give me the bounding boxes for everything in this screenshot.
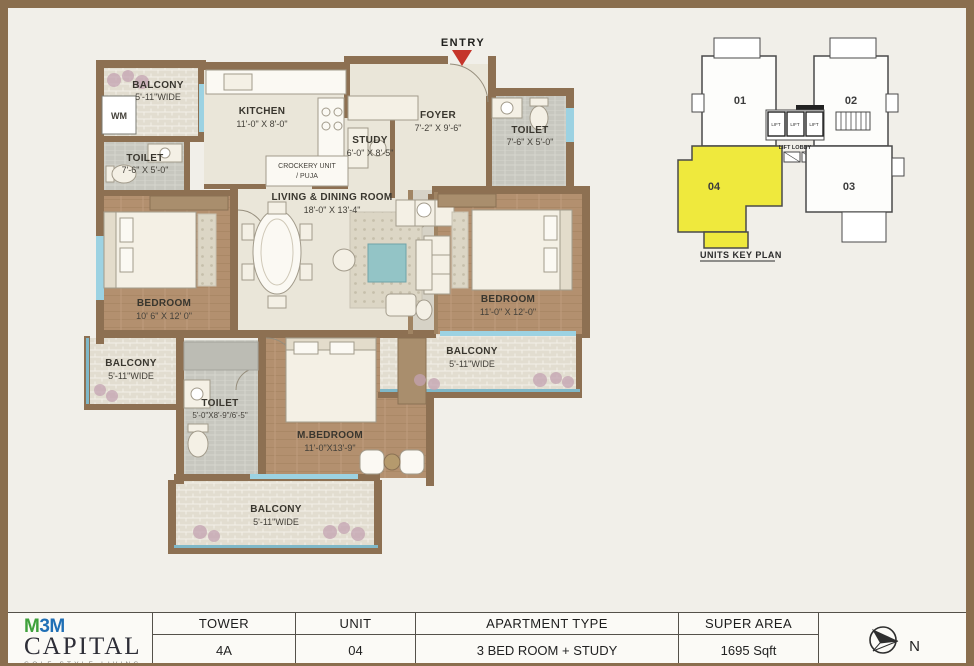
- pillow: [120, 218, 133, 242]
- bed: [104, 212, 196, 288]
- tower-column: TOWER 4A: [152, 613, 295, 666]
- wc: [416, 300, 432, 320]
- compass: N: [818, 613, 966, 666]
- crockery-unit-box: [266, 156, 348, 186]
- wardrobe: [398, 338, 426, 404]
- floorplan-page: ENTRY BALCONY 5'-11"WIDE WM KITCHEN 11'-…: [0, 0, 974, 666]
- label-toilet-tr: TOILET: [511, 125, 548, 136]
- lift-lobby-label: LIFT LOBBY: [779, 145, 812, 151]
- dining-chair: [268, 202, 286, 214]
- svg-text:5'-0"X8'-9"/6'-5": 5'-0"X8'-9"/6'-5": [192, 411, 248, 420]
- cabinet: [416, 240, 432, 290]
- pillow: [294, 342, 318, 354]
- dining-chair: [300, 224, 312, 240]
- svg-text:5'-11"WIDE: 5'-11"WIDE: [449, 359, 495, 369]
- label-foyer: FOYER: [420, 110, 456, 121]
- label-kitchen: KITCHEN: [239, 106, 286, 117]
- window-master-bedroom: [250, 474, 358, 479]
- units-key-plan: 01 02 04 03 LIFT LIFT LIFT LIFT LOBBY UN…: [678, 38, 904, 261]
- tower-header: TOWER: [153, 613, 295, 635]
- coffee-table: [368, 244, 406, 282]
- unit-03-block: [806, 146, 892, 212]
- label-bedroom-right: BEDROOM: [481, 294, 535, 305]
- svg-text:LIFT: LIFT: [790, 122, 800, 127]
- info-table: M3M CAPITAL GOLF STYLE LIVING TOWER 4A U…: [8, 612, 966, 666]
- super-area-header: SUPER AREA: [679, 613, 818, 635]
- svg-text:11'-0"X13'-9": 11'-0"X13'-9": [304, 443, 355, 453]
- unit-header: UNIT: [296, 613, 415, 635]
- pillow: [544, 216, 557, 240]
- svg-text:11'-0" X 8'-0": 11'-0" X 8'-0": [236, 119, 287, 129]
- svg-text:7'-6" X 5'-0": 7'-6" X 5'-0": [122, 165, 169, 175]
- twin-basin: [400, 450, 424, 474]
- study-sofa: [348, 96, 418, 120]
- pillow: [330, 342, 354, 354]
- svg-text:5'-11"WIDE: 5'-11"WIDE: [135, 92, 181, 102]
- unit-01-label: 01: [734, 95, 746, 107]
- bedside-rug: [452, 212, 468, 288]
- bedside-rug: [198, 214, 216, 286]
- svg-text:5'-11"WIDE: 5'-11"WIDE: [253, 517, 299, 527]
- svg-text:5'-11"WIDE: 5'-11"WIDE: [108, 371, 154, 381]
- svg-text:LIFT: LIFT: [771, 122, 781, 127]
- pillow: [544, 248, 557, 272]
- label-study: STUDY: [352, 135, 387, 146]
- shower-area: [184, 342, 258, 370]
- north-label: N: [909, 638, 920, 655]
- super-area-value: 1695 Sqft: [679, 635, 818, 666]
- unit-04-block-highlighted: [678, 146, 782, 232]
- label-balcony-tl: BALCONY: [132, 80, 184, 91]
- wc: [188, 431, 208, 457]
- railing-balcony-mid-left: [86, 338, 89, 404]
- dining-chair: [268, 296, 286, 308]
- svg-text:10' 6" X 12' 0": 10' 6" X 12' 0": [136, 311, 192, 321]
- kitchen-sink: [224, 74, 252, 90]
- label-toilet-tl: TOILET: [126, 153, 163, 164]
- window-kitchen: [199, 84, 204, 132]
- dining-table: [253, 210, 301, 294]
- label-balcony-ml: BALCONY: [105, 358, 157, 369]
- dining-chair: [242, 224, 254, 240]
- svg-text:18'-0" X 13'-4": 18'-0" X 13'-4": [304, 205, 361, 215]
- svg-text:6'-0" X 8'-5": 6'-0" X 8'-5": [347, 148, 394, 158]
- unit-column: UNIT 04: [295, 613, 415, 666]
- floor-plan-drawing: ENTRY BALCONY 5'-11"WIDE WM KITCHEN 11'-…: [0, 0, 974, 612]
- label-bedroom-left: BEDROOM: [137, 298, 191, 309]
- brand-capital: CAPITAL: [24, 635, 152, 659]
- key-plan-title: UNITS KEY PLAN: [700, 250, 782, 260]
- svg-text:LIFT: LIFT: [809, 122, 819, 127]
- wardrobe: [150, 196, 228, 210]
- railing-balcony-bottom: [174, 545, 378, 548]
- label-balcony-bottom: BALCONY: [250, 504, 302, 515]
- svg-text:/ PUJA: / PUJA: [296, 173, 318, 180]
- svg-text:11'-0" X 12'-0": 11'-0" X 12'-0": [480, 307, 536, 317]
- dining-chair: [242, 264, 254, 280]
- twin-basin: [360, 450, 384, 474]
- armchair: [333, 249, 355, 271]
- pillow: [120, 248, 133, 272]
- label-wm: WM: [111, 111, 127, 121]
- label-master-bedroom: M.BEDROOM: [297, 430, 363, 441]
- unit-03-label: 03: [843, 181, 855, 193]
- label-crockery: CROCKERY UNIT: [278, 163, 336, 170]
- unit-04-label: 04: [708, 181, 721, 193]
- window-bedroom-left: [96, 236, 104, 300]
- brand-tagline: GOLF STYLE LIVING: [24, 661, 152, 666]
- unit-02-label: 02: [845, 95, 857, 107]
- window-bedroom-right: [440, 331, 576, 336]
- dining-chair: [300, 264, 312, 280]
- basin: [417, 203, 431, 217]
- apartment-type-value: 3 BED ROOM + STUDY: [416, 635, 678, 666]
- kitchen-hob-counter: [318, 98, 344, 158]
- svg-text:7'-2" X 9'-6": 7'-2" X 9'-6": [415, 123, 462, 133]
- compass-icon: [865, 619, 907, 661]
- wardrobe: [438, 194, 496, 207]
- vanity-mirror: [384, 454, 400, 470]
- accent-chair: [386, 294, 416, 316]
- entry-label: ENTRY: [441, 37, 485, 49]
- apartment-type-header: APARTMENT TYPE: [416, 613, 678, 635]
- label-toilet-bottom: TOILET: [201, 398, 238, 409]
- brand-logo: M3M CAPITAL GOLF STYLE LIVING: [8, 613, 152, 666]
- label-balcony-right: BALCONY: [446, 346, 498, 357]
- label-living: LIVING & DINING ROOM: [272, 192, 393, 203]
- entry-arrow-icon: [452, 50, 472, 66]
- unit-value: 04: [296, 635, 415, 666]
- svg-text:7'-6" X 5'-0": 7'-6" X 5'-0": [507, 137, 554, 147]
- super-area-column: SUPER AREA 1695 Sqft: [678, 613, 818, 666]
- wc-tank: [530, 98, 548, 106]
- tower-value: 4A: [153, 635, 295, 666]
- window-toilet: [566, 108, 574, 142]
- apartment-type-column: APARTMENT TYPE 3 BED ROOM + STUDY: [415, 613, 678, 666]
